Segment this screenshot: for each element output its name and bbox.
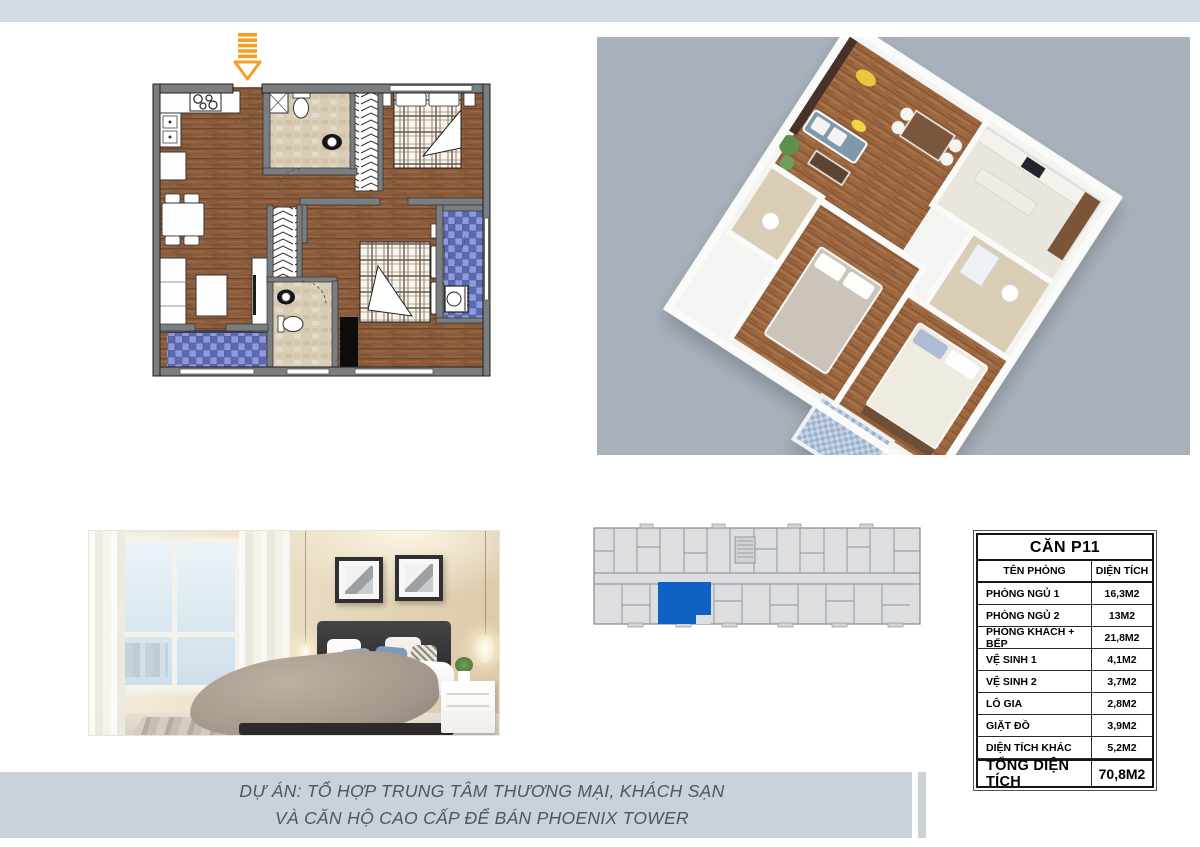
brochure-sheet: CĂN P11 TÊN PHÒNG DIỆN TÍCH PHÒNG NGỦ 1 …	[0, 0, 1200, 847]
footer-accent-strip	[918, 772, 926, 838]
plant-pot	[458, 671, 470, 681]
highlighted-unit-p11	[658, 582, 711, 624]
building-key-plan	[592, 523, 922, 629]
pendant-lamp-right	[475, 635, 495, 663]
unit-area-table: CĂN P11 TÊN PHÒNG DIỆN TÍCH PHÒNG NGỦ 1 …	[973, 530, 1157, 791]
table-row: PHÒNG KHÁCH + BẾP 21,8M2	[978, 627, 1152, 649]
balcony-loggia-floor	[167, 330, 268, 372]
wall-art-2	[395, 555, 443, 601]
wall-art-1	[335, 557, 383, 603]
table-row: GIẶT ĐỒ 3,9M2	[978, 715, 1152, 737]
project-title-line1: DỰ ÁN: TỔ HỢP TRUNG TÂM THƯƠNG MẠI, KHÁC…	[239, 778, 724, 805]
table-total-row: TỔNG DIỆN TÍCH 70,8M2	[978, 759, 1152, 786]
building-outline	[594, 528, 920, 624]
wardrobe-closet-2	[273, 207, 297, 279]
floor-plan-3d-panel	[597, 37, 1190, 455]
nightstand	[441, 681, 495, 733]
footer-project-banner: DỰ ÁN: TỔ HỢP TRUNG TÂM THƯƠNG MẠI, KHÁC…	[0, 772, 912, 838]
bed-base	[239, 723, 454, 735]
col-header-area: DIỆN TÍCH	[1092, 565, 1152, 577]
table-row: VỆ SINH 2 3,7M2	[978, 671, 1152, 693]
floor-plan-2d	[140, 28, 500, 378]
table-row: LÔ GIA 2,8M2	[978, 693, 1152, 715]
unit-title: CĂN P11	[978, 535, 1152, 561]
entrance-arrow-icon	[235, 33, 260, 79]
project-title-line2: VÀ CĂN HỘ CAO CẤP ĐỂ BÁN PHOENIX TOWER	[275, 805, 689, 832]
floor-plan-3d	[597, 37, 1190, 455]
top-accent-bar	[0, 0, 1200, 22]
ceiling-light-glow	[269, 531, 500, 601]
table-header-row: TÊN PHÒNG DIỆN TÍCH	[978, 561, 1152, 583]
curtain-left	[89, 531, 125, 736]
washing-machine	[445, 286, 469, 312]
stair-core	[735, 537, 755, 563]
table-row: VỆ SINH 1 4,1M2	[978, 649, 1152, 671]
table-row: DIỆN TÍCH KHÁC 5,2M2	[978, 737, 1152, 759]
table-row: PHÒNG NGỦ 1 16,3M2	[978, 583, 1152, 605]
col-header-room: TÊN PHÒNG	[978, 561, 1092, 581]
table-row: PHÒNG NGỦ 2 13M2	[978, 605, 1152, 627]
technical-shaft	[340, 317, 358, 368]
bed-bedroom-1	[380, 92, 475, 168]
wardrobe-closet-1	[355, 91, 378, 191]
bedroom-photo	[88, 530, 500, 736]
